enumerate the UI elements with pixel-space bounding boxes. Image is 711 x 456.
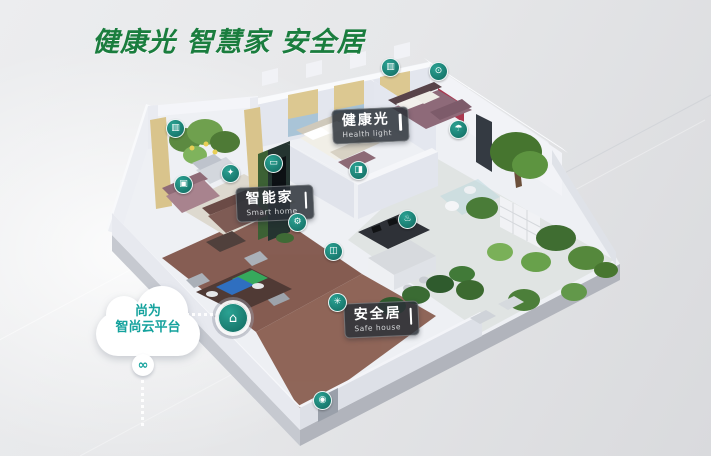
humidity-sensor-icon: ☂ (449, 120, 468, 139)
doorbell-camera-icon: ◉ (313, 391, 332, 410)
curtain-icon: ▥ (381, 58, 400, 77)
curtain-icon: ▥ (166, 119, 185, 138)
callout-zh: 安全居 (353, 305, 402, 324)
control-panel-icon: ▣ (174, 175, 193, 194)
callout-pin (409, 308, 412, 325)
callout-en: Safe house (354, 322, 402, 333)
air-purifier-icon: ◫ (324, 242, 343, 261)
gateway-hub-icon: ⌂ (218, 303, 248, 333)
floor-lamp-icon: ✦ (221, 164, 240, 183)
callout-health-light: 健康光 Health light (331, 106, 409, 144)
promo-scene: 健康光 智慧家 安全居 健康光 Health light 智能家 Smart h… (0, 0, 711, 456)
air-quality-icon: ⚙ (288, 213, 307, 232)
callout-en: Health light (342, 128, 392, 139)
link-icon: ∞ (132, 354, 154, 376)
tv-icon: ▭ (264, 154, 283, 173)
cloud-platform-label: 尚为 智尚云平台 (96, 304, 200, 336)
door-sensor-icon: ◨ (349, 161, 368, 180)
cloud-platform-badge: 尚为 智尚云平台 (96, 312, 200, 356)
dotted-connector-vertical (141, 380, 144, 426)
callout-pin (304, 192, 307, 209)
smart-home-3d-render (0, 0, 711, 456)
callout-safe-house: 安全居 Safe house (343, 300, 419, 338)
stove-sensor-icon: ♨ (398, 210, 417, 229)
dotted-connector-horizontal (163, 313, 213, 316)
ceiling-light-icon: ⊙ (429, 62, 448, 81)
page-title: 健康光 智慧家 安全居 (92, 20, 365, 59)
irrigation-icon: ✳ (328, 293, 347, 312)
callout-pin (399, 114, 402, 131)
